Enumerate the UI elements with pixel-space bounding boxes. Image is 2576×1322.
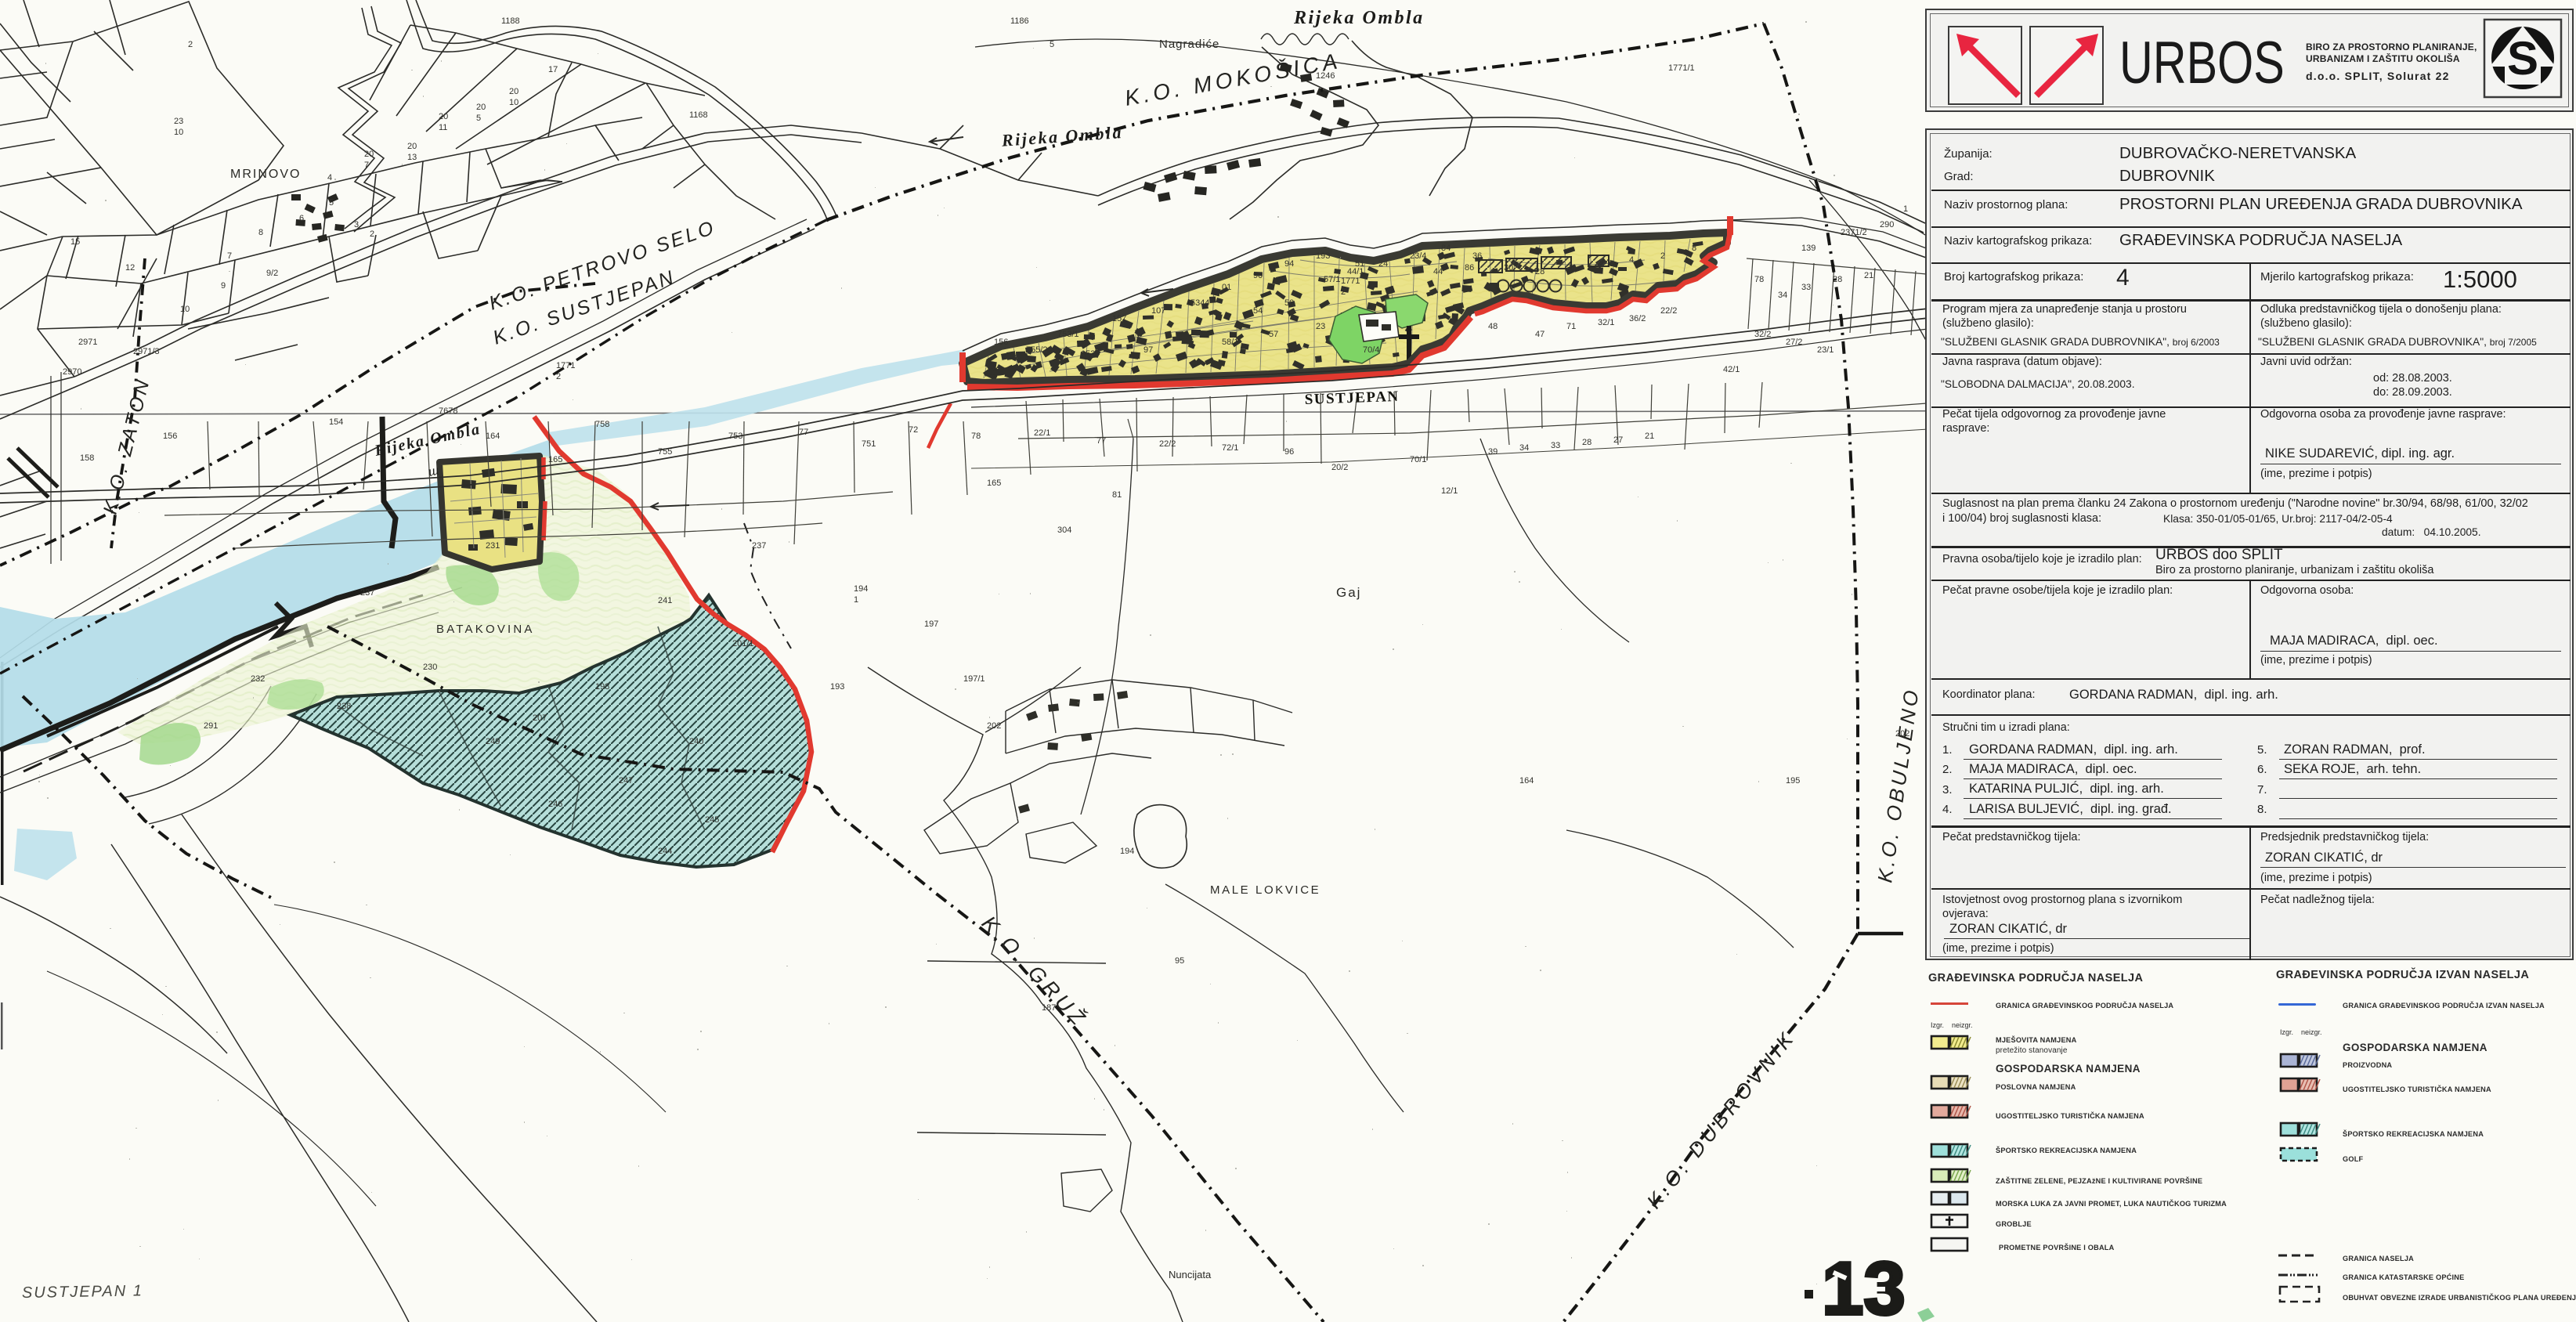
- svg-text:94: 94: [1284, 259, 1294, 269]
- svg-text:44: 44: [1433, 267, 1443, 276]
- svg-text:1: 1: [1903, 204, 1908, 214]
- svg-text:50: 50: [1284, 298, 1294, 308]
- svg-text:157: 157: [1112, 314, 1126, 323]
- svg-text:70/1: 70/1: [1410, 455, 1426, 464]
- svg-text:7: 7: [364, 161, 369, 170]
- svg-text:70/4: 70/4: [1363, 345, 1379, 355]
- svg-text:240: 240: [689, 737, 703, 746]
- svg-text:72: 72: [909, 425, 918, 435]
- svg-text:197: 197: [924, 619, 938, 629]
- svg-text:33: 33: [1551, 441, 1560, 450]
- svg-text:304: 304: [1057, 526, 1071, 535]
- svg-text:97: 97: [1143, 345, 1153, 355]
- svg-text:4: 4: [1629, 255, 1634, 265]
- svg-text:17: 17: [548, 65, 558, 74]
- svg-text:202: 202: [987, 721, 1001, 731]
- svg-text:10: 10: [180, 305, 190, 314]
- svg-text:23/1: 23/1: [1817, 345, 1834, 355]
- svg-text:90: 90: [1253, 271, 1263, 280]
- svg-text:1771: 1771: [1341, 276, 1360, 286]
- svg-text:44/1: 44/1: [1347, 267, 1364, 276]
- svg-text:194: 194: [1120, 847, 1134, 856]
- svg-text:27/2: 27/2: [1786, 338, 1802, 347]
- svg-text:202: 202: [1895, 729, 1909, 739]
- svg-text:5344: 5344: [1190, 298, 1209, 308]
- svg-text:11: 11: [439, 123, 447, 132]
- svg-text:20: 20: [364, 150, 374, 159]
- svg-text:1246: 1246: [1316, 71, 1335, 81]
- svg-text:72/1: 72/1: [1222, 443, 1238, 453]
- svg-text:2: 2: [188, 40, 193, 49]
- svg-text:291: 291: [204, 721, 218, 731]
- svg-text:164: 164: [486, 432, 500, 441]
- svg-text:2: 2: [556, 372, 561, 381]
- svg-text:32/1: 32/1: [1598, 318, 1614, 327]
- svg-text:84: 84: [1441, 244, 1451, 253]
- svg-text:42/1: 42/1: [1723, 365, 1740, 374]
- svg-text:81: 81: [1112, 490, 1122, 500]
- svg-text:193: 193: [1316, 251, 1330, 261]
- svg-text:54: 54: [1253, 306, 1263, 316]
- svg-text:Nuncijata: Nuncijata: [1169, 1269, 1212, 1280]
- svg-text:7: 7: [227, 251, 232, 261]
- svg-text:8: 8: [1692, 244, 1696, 253]
- svg-text:2: 2: [1660, 251, 1665, 261]
- svg-text:165: 165: [987, 479, 1001, 488]
- svg-text:237: 237: [752, 541, 766, 551]
- svg-text:20: 20: [476, 103, 486, 112]
- svg-text:187: 187: [1042, 1003, 1056, 1013]
- svg-text:S: S: [2507, 32, 2538, 85]
- svg-text:153: 153: [1081, 349, 1095, 359]
- svg-text:32/2: 32/2: [1754, 330, 1771, 339]
- svg-text:1186: 1186: [1010, 16, 1029, 26]
- svg-text:78: 78: [1754, 275, 1764, 284]
- svg-text:22/1: 22/1: [1034, 428, 1050, 438]
- svg-text:197/1: 197/1: [963, 674, 985, 684]
- svg-text:13: 13: [1822, 1247, 1906, 1322]
- svg-text:2371/2: 2371/2: [1841, 228, 1867, 237]
- svg-text:Gaj: Gaj: [1336, 585, 1361, 600]
- svg-text:20/2: 20/2: [1331, 463, 1348, 472]
- svg-text:193: 193: [830, 682, 844, 692]
- svg-text:24: 24: [1566, 263, 1576, 273]
- svg-text:36/2: 36/2: [1629, 314, 1646, 323]
- svg-text:139: 139: [1801, 244, 1815, 253]
- svg-text:201/1: 201/1: [732, 639, 754, 648]
- svg-text:12: 12: [125, 263, 135, 273]
- svg-text:95: 95: [1175, 956, 1184, 966]
- svg-text:13: 13: [407, 153, 417, 162]
- svg-text:241: 241: [658, 596, 672, 605]
- svg-text:156: 156: [163, 432, 177, 441]
- svg-text:1168: 1168: [689, 110, 708, 120]
- svg-text:22/2: 22/2: [1660, 306, 1677, 316]
- svg-text:156: 156: [994, 338, 1008, 347]
- svg-text:5: 5: [1050, 40, 1054, 49]
- svg-text:SUSTJEPAN: SUSTJEPAN: [1304, 388, 1400, 408]
- svg-text:244: 244: [658, 847, 672, 856]
- svg-text:86: 86: [1465, 263, 1474, 273]
- svg-text:77: 77: [1097, 436, 1106, 446]
- svg-text:78: 78: [971, 432, 981, 441]
- svg-text:22/2: 22/2: [1159, 439, 1176, 449]
- svg-text:246: 246: [548, 800, 562, 809]
- svg-text:Rijeka Ombla: Rijeka Ombla: [1293, 8, 1425, 28]
- svg-text:23: 23: [174, 117, 183, 126]
- svg-text:22/2: 22/2: [1598, 259, 1614, 269]
- svg-text:195: 195: [1786, 776, 1800, 786]
- svg-text:165: 165: [548, 455, 562, 464]
- svg-text:9/2: 9/2: [266, 269, 278, 278]
- svg-text:Nagradiće: Nagradiće: [1159, 38, 1219, 51]
- svg-text:21: 21: [1864, 271, 1873, 280]
- svg-text:20: 20: [407, 142, 417, 151]
- svg-text:48: 48: [1488, 322, 1498, 331]
- svg-text:34: 34: [1519, 443, 1529, 453]
- svg-text:1: 1: [854, 595, 858, 605]
- svg-text:154: 154: [329, 417, 343, 427]
- svg-text:2971: 2971: [78, 338, 97, 347]
- svg-text:230: 230: [423, 663, 437, 672]
- svg-text:33: 33: [1801, 283, 1811, 292]
- svg-text:57/1: 57/1: [1324, 275, 1340, 284]
- svg-text:23: 23: [1316, 322, 1325, 331]
- svg-text:247: 247: [619, 776, 633, 786]
- svg-text:34: 34: [1778, 291, 1787, 300]
- svg-text:758: 758: [595, 420, 609, 429]
- svg-text:290: 290: [1880, 220, 1894, 229]
- svg-text:47: 47: [1535, 330, 1545, 339]
- svg-text:77: 77: [799, 428, 808, 437]
- svg-text:9: 9: [221, 281, 226, 291]
- svg-text:249: 249: [486, 737, 500, 746]
- svg-text:1771: 1771: [556, 361, 575, 370]
- svg-text:232: 232: [251, 674, 265, 684]
- svg-text:10: 10: [174, 128, 183, 137]
- svg-text:20: 20: [439, 112, 448, 121]
- svg-text:1771/1: 1771/1: [1668, 63, 1695, 73]
- svg-text:753/1: 753/1: [1057, 330, 1079, 339]
- svg-text:10: 10: [509, 98, 518, 107]
- svg-text:1188: 1188: [501, 16, 520, 26]
- svg-text:107: 107: [1151, 306, 1165, 316]
- svg-text:158: 158: [80, 453, 94, 463]
- svg-text:6: 6: [299, 214, 304, 223]
- svg-text:755: 755: [658, 447, 672, 457]
- svg-text:58/1: 58/1: [1222, 338, 1238, 347]
- svg-text:755/2: 755/2: [1026, 345, 1048, 355]
- svg-text:164: 164: [1519, 776, 1534, 786]
- svg-text:SUSTJEPAN 1: SUSTJEPAN 1: [22, 1282, 143, 1302]
- svg-text:231: 231: [486, 541, 500, 551]
- svg-text:01: 01: [1222, 283, 1231, 292]
- svg-text:27: 27: [1613, 435, 1623, 445]
- svg-text:5: 5: [329, 198, 334, 208]
- svg-text:7678: 7678: [439, 406, 457, 416]
- svg-text:2: 2: [1341, 287, 1346, 297]
- svg-text:23/4: 23/4: [1410, 251, 1426, 261]
- svg-text:71: 71: [1566, 322, 1576, 331]
- svg-text:30: 30: [1504, 263, 1513, 273]
- svg-text:28: 28: [1833, 275, 1842, 284]
- svg-text:20: 20: [509, 87, 518, 96]
- svg-text:28: 28: [1535, 267, 1545, 276]
- svg-text:MALE LOKVICE: MALE LOKVICE: [1210, 883, 1321, 897]
- svg-text:238: 238: [337, 702, 351, 711]
- svg-text:2: 2: [370, 229, 374, 239]
- svg-text:96: 96: [1284, 447, 1294, 457]
- svg-text:12/1: 12/1: [1441, 486, 1458, 496]
- svg-text:28: 28: [1582, 438, 1591, 447]
- svg-text:5: 5: [476, 114, 481, 123]
- svg-text:207: 207: [533, 713, 547, 723]
- svg-text:245: 245: [705, 815, 719, 825]
- svg-text:3: 3: [354, 220, 359, 229]
- svg-text:BATAKOVINA: BATAKOVINA: [436, 623, 535, 636]
- svg-text:237: 237: [360, 588, 374, 598]
- svg-text:57: 57: [1269, 330, 1278, 339]
- svg-text:751: 751: [862, 439, 876, 449]
- svg-text:36: 36: [1472, 251, 1482, 261]
- svg-text:MRINOVO: MRINOVO: [230, 168, 301, 181]
- svg-text:21: 21: [1645, 432, 1654, 441]
- svg-text:24: 24: [1378, 259, 1388, 269]
- svg-text:2971/3: 2971/3: [133, 347, 160, 356]
- svg-text:198: 198: [595, 682, 609, 692]
- svg-text:8: 8: [258, 228, 263, 237]
- svg-text:194: 194: [854, 584, 868, 594]
- svg-text:4: 4: [327, 173, 332, 182]
- svg-text:753: 753: [728, 432, 742, 441]
- svg-text:2970: 2970: [63, 367, 81, 377]
- svg-text:39: 39: [1488, 447, 1498, 457]
- svg-text:15: 15: [70, 237, 80, 247]
